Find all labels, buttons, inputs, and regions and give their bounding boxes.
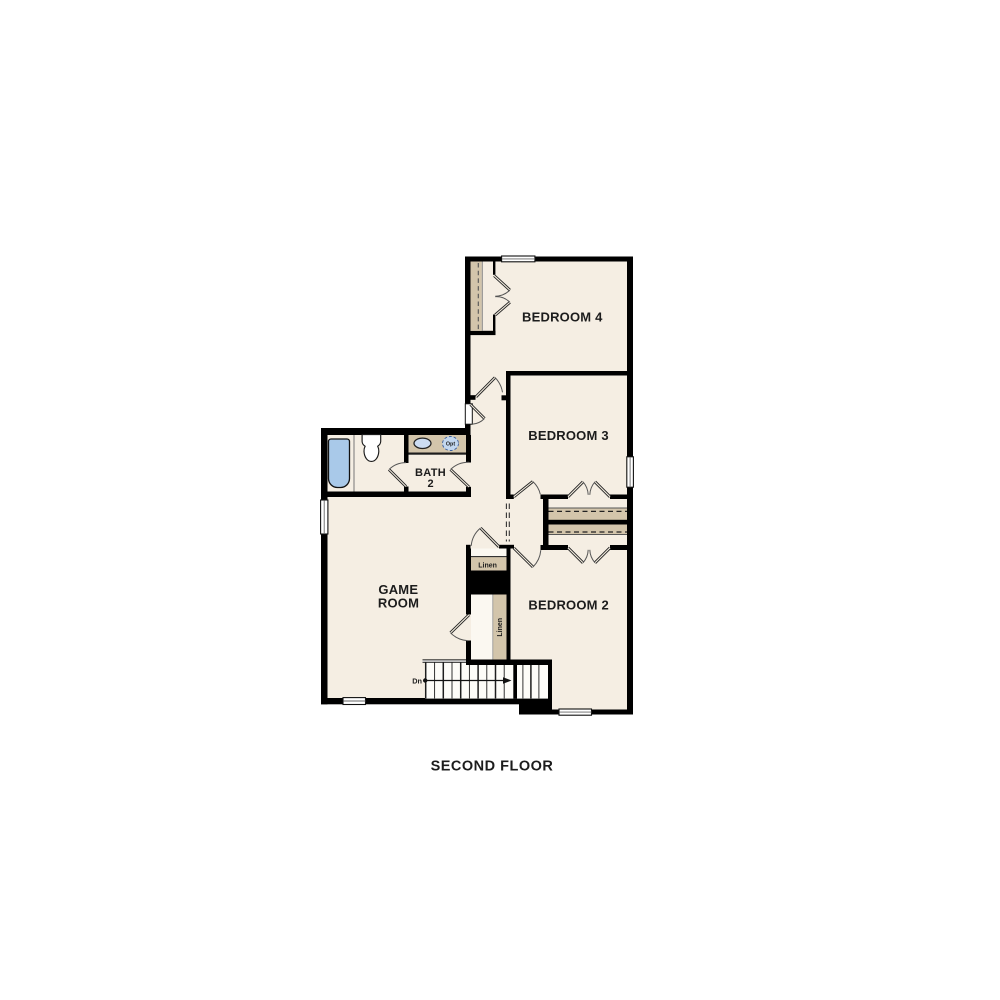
svg-text:Linen: Linen (478, 562, 497, 569)
svg-text:Dn: Dn (412, 677, 422, 686)
svg-text:BEDROOM 4: BEDROOM 4 (522, 309, 603, 324)
svg-text:Opt: Opt (446, 442, 455, 448)
svg-text:Linen: Linen (497, 618, 504, 637)
svg-text:2: 2 (428, 478, 434, 490)
svg-text:BEDROOM 2: BEDROOM 2 (528, 597, 609, 612)
svg-text:ROOM: ROOM (378, 596, 419, 611)
svg-text:SECOND FLOOR: SECOND FLOOR (431, 759, 554, 775)
svg-text:GAME: GAME (378, 582, 418, 597)
svg-text:BEDROOM 3: BEDROOM 3 (528, 428, 609, 443)
